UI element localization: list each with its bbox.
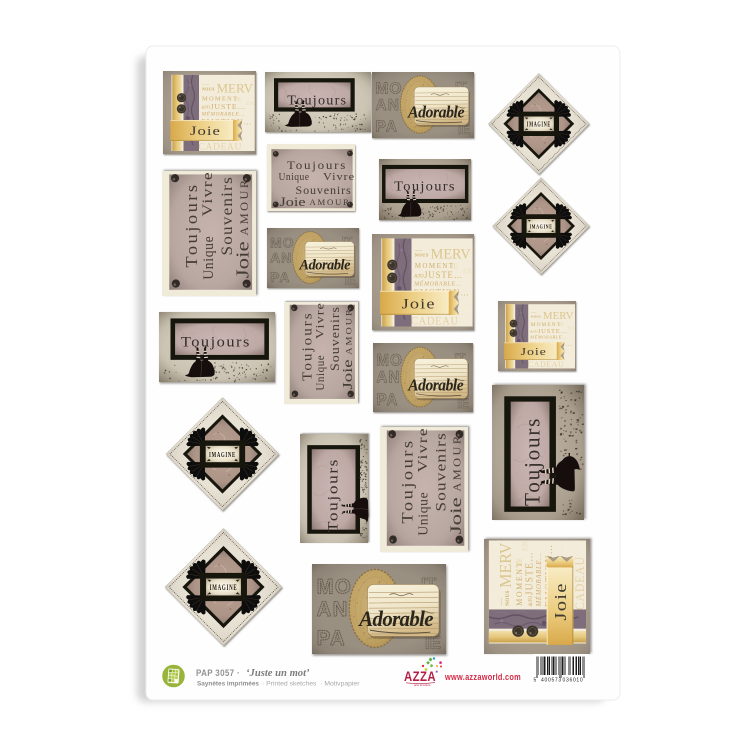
svg-text:PAP 3057 ·: PAP 3057 · [196, 668, 240, 678]
svg-text:400573: 400573 [541, 678, 562, 684]
svg-text:036010: 036010 [563, 678, 584, 684]
svg-text:‘Juste un mot’: ‘Juste un mot’ [246, 668, 310, 679]
svg-text:Saynètes imprimées: Saynètes imprimées [197, 681, 259, 688]
svg-text:· Printed sketches · Motivpap: · Printed sketches · Motivpapier [262, 681, 360, 688]
svg-text:www.azzaworld.com: www.azzaworld.com [444, 672, 521, 682]
svg-text:5: 5 [534, 678, 537, 684]
svg-text:arts & loisirs: arts & loisirs [414, 683, 431, 687]
svg-text:AZZA: AZZA [404, 669, 436, 684]
